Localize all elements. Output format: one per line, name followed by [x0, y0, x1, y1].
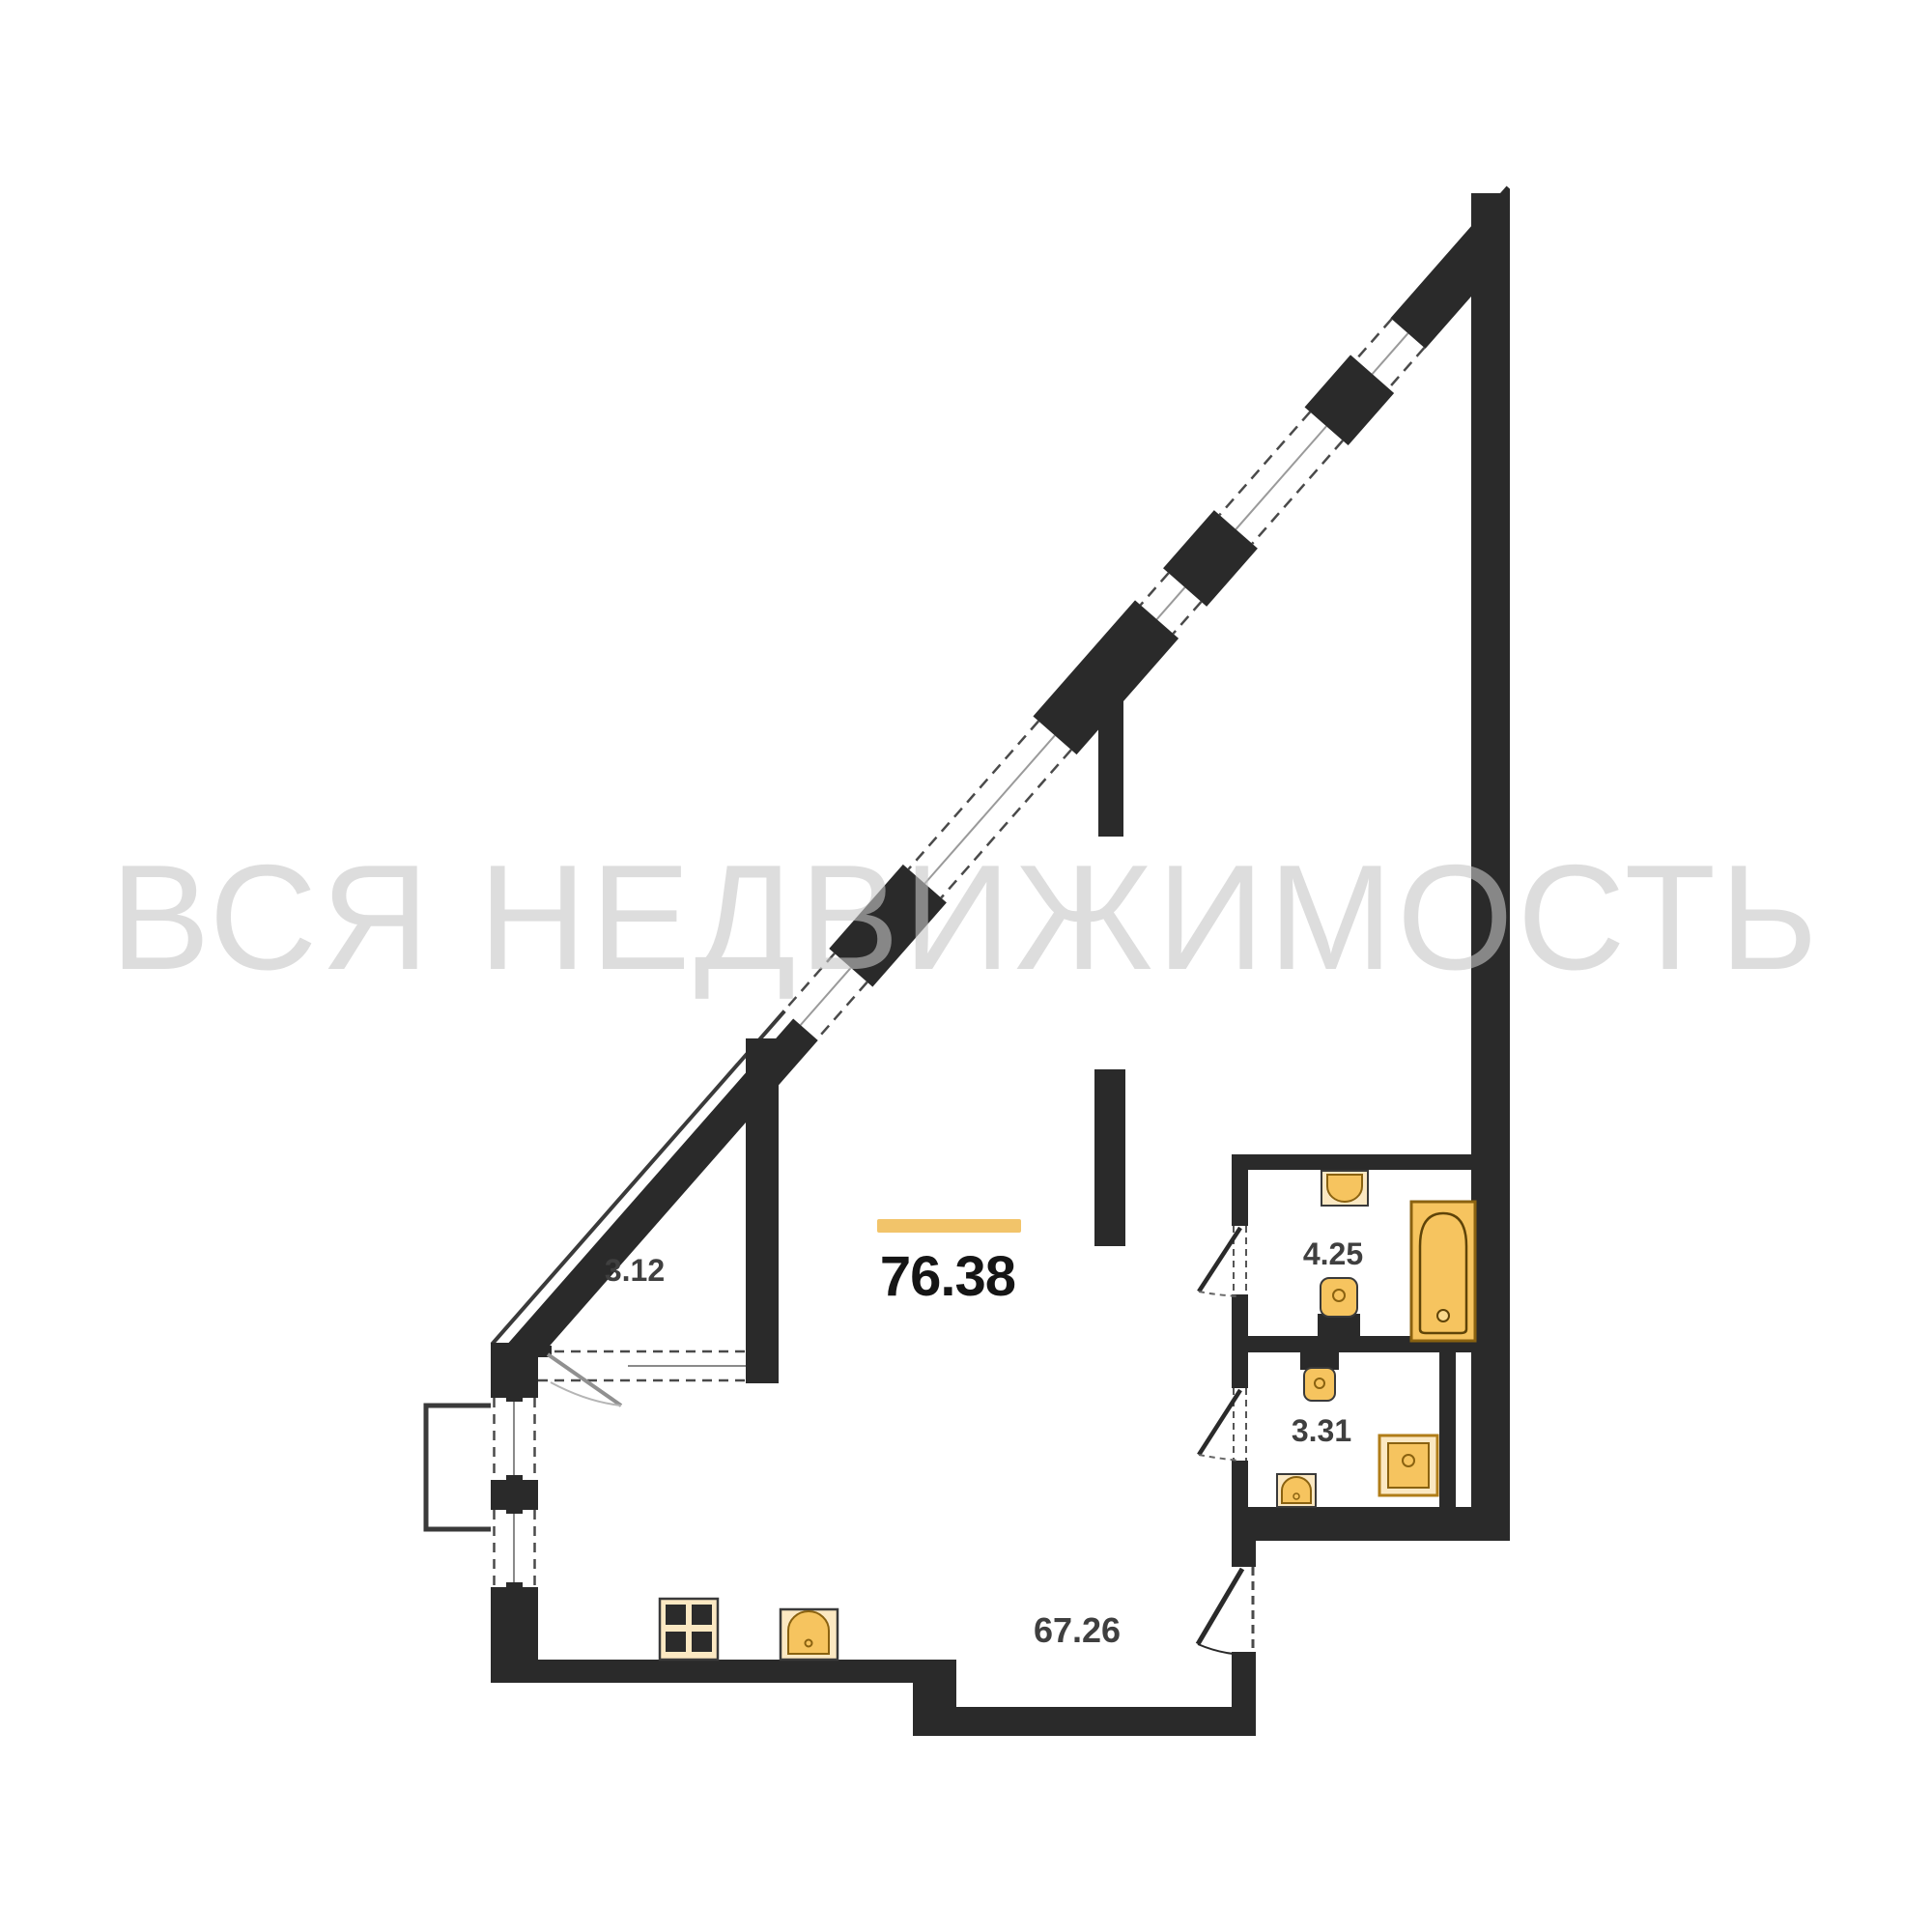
loggia-outer-edge-line: [492, 1011, 784, 1345]
area-label-loggia: 3.12: [605, 1253, 665, 1288]
area-label-wc: 3.31: [1292, 1413, 1351, 1448]
diagonal-window-wall: [486, 183, 1547, 1378]
wc-sink-icon: [1277, 1474, 1316, 1515]
wall-entrance-upper: [1232, 1541, 1256, 1567]
wall-right: [1471, 193, 1510, 1541]
balcony-outline: [426, 1406, 491, 1529]
floorplan-page: 3.12 76.38 4.25 3.31 67.26 ВСЯ НЕДВИЖИМО…: [0, 0, 1932, 1932]
loggia-window-door: [538, 1346, 746, 1406]
loggia-door-swing-arc: [551, 1382, 621, 1406]
wall-bath-left-c: [1232, 1461, 1248, 1507]
door-wc: [1199, 1388, 1246, 1461]
wall-wc-niche: [1439, 1352, 1456, 1507]
wall-bath-left-a: [1232, 1154, 1248, 1226]
door-entrance: [1198, 1567, 1253, 1655]
window-left-upper: [491, 1393, 538, 1484]
door-entrance-leaf: [1198, 1569, 1242, 1644]
wall-bottom-kitchen: [491, 1660, 956, 1683]
door-bathroom-leaf: [1199, 1228, 1240, 1292]
door-wc-leaf: [1199, 1390, 1240, 1455]
area-label-bathroom: 4.25: [1303, 1236, 1363, 1271]
toilet-wc-icon: [1300, 1350, 1339, 1401]
area-label-living: 67.26: [1034, 1610, 1121, 1650]
wall-loggia-right: [746, 1038, 779, 1383]
floor-plan-canvas: 3.12 76.38 4.25 3.31 67.26: [0, 0, 1932, 1932]
toilet-bathroom-icon: [1318, 1278, 1360, 1341]
door-bathroom-swing-arc: [1199, 1292, 1240, 1296]
kitchen-sink-icon: [781, 1609, 838, 1660]
bathtub-icon: [1411, 1202, 1475, 1341]
wall-left-corner: [491, 1343, 538, 1398]
wall-entrance-lower: [1232, 1652, 1256, 1736]
wall-stub-upper: [1098, 691, 1123, 837]
window-left-lower: [491, 1505, 538, 1591]
total-area-underline: [877, 1219, 1021, 1233]
washing-machine-icon: [1379, 1435, 1437, 1495]
wall-bottom-lower: [913, 1707, 1256, 1736]
bathroom-sink-icon: [1321, 1167, 1368, 1206]
stove-icon: [660, 1599, 718, 1660]
wall-stub-hall: [1094, 1069, 1125, 1246]
wall-bath-bottom: [1232, 1507, 1510, 1541]
total-area-label: 76.38: [880, 1245, 1015, 1308]
door-bathroom: [1199, 1226, 1246, 1296]
